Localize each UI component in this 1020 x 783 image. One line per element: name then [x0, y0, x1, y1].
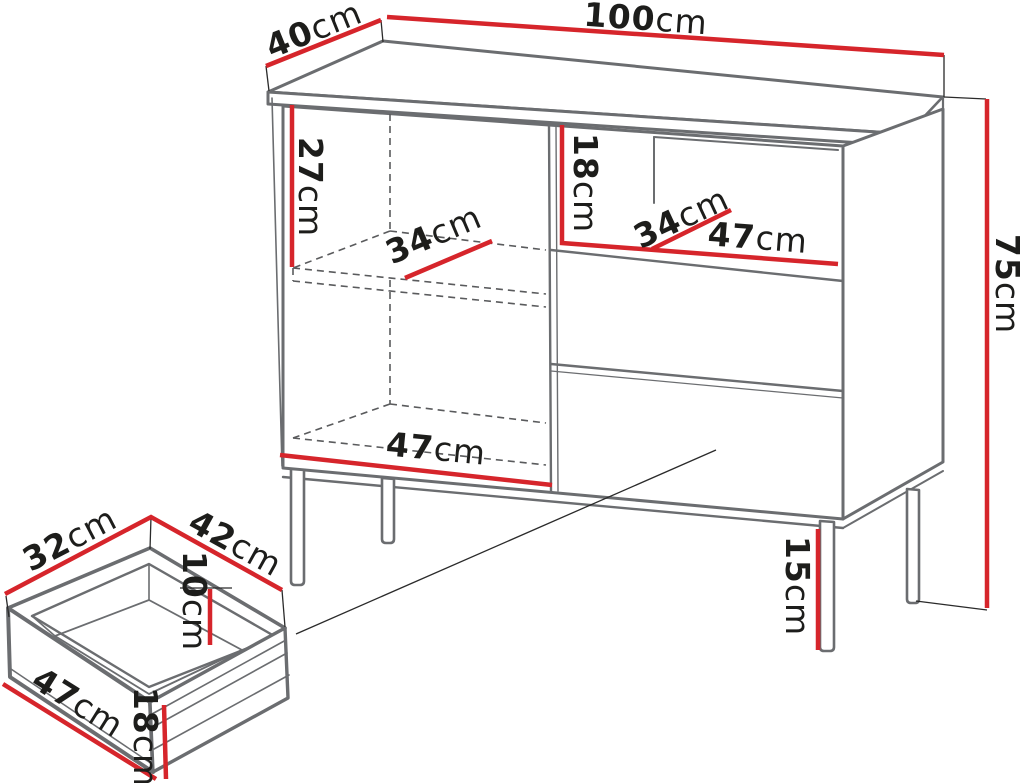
cabinet-right-side-panel: [843, 109, 943, 519]
front-left-leg: [291, 469, 304, 585]
dim-label-interior-height: 27cm: [291, 137, 330, 237]
dim-label-niche-width: 47cm: [706, 214, 809, 261]
back-left-leg: [382, 478, 394, 543]
diagram-canvas: 100cm 40cm 75cm 27cm 34cm 47cm 18cm 34cm…: [0, 0, 1020, 783]
dim-label-niche-height: 18cm: [566, 133, 605, 233]
front-right-leg: [820, 521, 834, 651]
dim-label-leg-height: 15cm: [778, 536, 817, 636]
dim-label-height: 75cm: [988, 234, 1020, 334]
cabinet-left-edge: [272, 98, 282, 466]
dim-label-drawer-interior-height: 10cm: [175, 551, 214, 651]
dim-label-width: 100cm: [582, 0, 709, 42]
back-right-leg: [907, 489, 919, 603]
furniture-dimension-diagram: 100cm 40cm 75cm 27cm 34cm 47cm 18cm 34cm…: [0, 0, 1020, 783]
dim-label-drawer-front-height: 18cm: [126, 687, 165, 783]
